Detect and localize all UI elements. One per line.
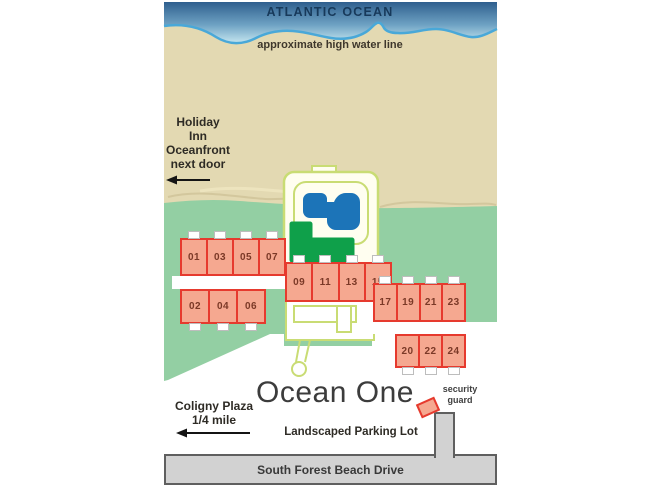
unit-22: 22 bbox=[418, 334, 443, 368]
balcony-tab bbox=[425, 276, 437, 284]
unit-number: 01 bbox=[188, 252, 200, 263]
balcony-tab bbox=[402, 367, 414, 375]
balcony-tab bbox=[319, 255, 331, 263]
security-guard-label: security guard bbox=[430, 384, 490, 407]
balcony-tab bbox=[379, 276, 391, 284]
balcony-tab bbox=[188, 231, 200, 239]
unit-number: 19 bbox=[402, 297, 414, 308]
map-scenery bbox=[0, 0, 650, 488]
balcony-tab bbox=[372, 255, 384, 263]
site-map-page: 01030507 020406 09111315 17192123 202224… bbox=[0, 0, 650, 488]
parking-lot-label: Landscaped Parking Lot bbox=[266, 426, 436, 438]
unit-number: 11 bbox=[320, 277, 332, 288]
balcony-tab bbox=[346, 255, 358, 263]
balcony-tab bbox=[266, 231, 278, 239]
unit-number: 20 bbox=[401, 346, 413, 357]
unit-01: 01 bbox=[180, 238, 208, 276]
high-water-line-label: approximate high water line bbox=[225, 39, 435, 51]
road-label: South Forest Beach Drive bbox=[257, 463, 404, 477]
coligny-plaza-label: Coligny Plaza 1/4 mile bbox=[164, 399, 264, 428]
balcony-tab bbox=[240, 231, 252, 239]
right-block-corridor bbox=[366, 322, 471, 334]
building-row-right-top: 17192123 bbox=[373, 283, 466, 322]
unit-13: 13 bbox=[338, 262, 366, 302]
balcony-tab bbox=[293, 255, 305, 263]
balcony-tab bbox=[189, 323, 201, 331]
unit-06: 06 bbox=[236, 289, 266, 324]
unit-number: 24 bbox=[447, 346, 459, 357]
unit-number: 05 bbox=[240, 252, 252, 263]
balcony-tab bbox=[448, 276, 460, 284]
unit-05: 05 bbox=[232, 238, 260, 276]
building-row-right-bottom: 202224 bbox=[395, 334, 466, 368]
unit-19: 19 bbox=[396, 283, 421, 322]
unit-number: 09 bbox=[293, 277, 305, 288]
unit-number: 02 bbox=[189, 301, 201, 312]
building-row-left-top: 01030507 bbox=[180, 238, 286, 276]
unit-number: 07 bbox=[266, 252, 278, 263]
walkway-outline bbox=[337, 306, 351, 332]
road: South Forest Beach Drive bbox=[164, 454, 497, 485]
balcony-tab bbox=[217, 323, 229, 331]
unit-24: 24 bbox=[441, 334, 466, 368]
property-title: Ocean One bbox=[250, 376, 420, 410]
unit-number: 23 bbox=[448, 297, 460, 308]
unit-number: 13 bbox=[346, 277, 358, 288]
unit-number: 17 bbox=[379, 297, 391, 308]
unit-number: 03 bbox=[214, 252, 226, 263]
unit-21: 21 bbox=[419, 283, 444, 322]
balcony-tab bbox=[214, 231, 226, 239]
unit-03: 03 bbox=[206, 238, 234, 276]
balcony-tab bbox=[448, 367, 460, 375]
path-circle bbox=[292, 362, 306, 376]
unit-04: 04 bbox=[208, 289, 238, 324]
balcony-tab bbox=[402, 276, 414, 284]
unit-17: 17 bbox=[373, 283, 398, 322]
unit-number: 04 bbox=[217, 301, 229, 312]
entrance-driveway bbox=[434, 412, 455, 458]
building-row-left-bottom: 020406 bbox=[180, 289, 266, 324]
atlantic-ocean-label: ATLANTIC OCEAN bbox=[230, 5, 430, 19]
unit-23: 23 bbox=[441, 283, 466, 322]
unit-07: 07 bbox=[258, 238, 286, 276]
unit-20: 20 bbox=[395, 334, 420, 368]
unit-number: 06 bbox=[245, 301, 257, 312]
balcony-tab bbox=[245, 323, 257, 331]
unit-number: 21 bbox=[425, 297, 437, 308]
holiday-inn-arrow bbox=[166, 174, 212, 186]
holiday-inn-label: Holiday Inn Oceanfront next door bbox=[146, 115, 250, 172]
unit-02: 02 bbox=[180, 289, 210, 324]
unit-11: 11 bbox=[311, 262, 339, 302]
unit-09: 09 bbox=[285, 262, 313, 302]
balcony-tab bbox=[425, 367, 437, 375]
unit-number: 22 bbox=[424, 346, 436, 357]
coligny-plaza-arrow bbox=[176, 427, 252, 439]
